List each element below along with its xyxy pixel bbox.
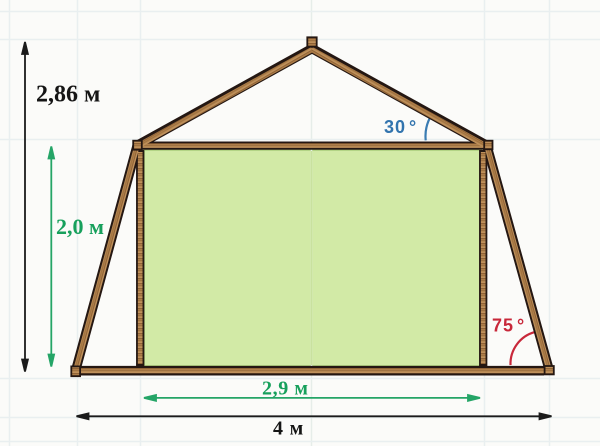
svg-text:75°: 75° <box>492 316 525 336</box>
svg-text:2,9 м: 2,9 м <box>262 378 309 400</box>
svg-text:30°: 30° <box>384 117 417 137</box>
svg-text:4 м: 4 м <box>273 418 304 440</box>
svg-text:2,0 м: 2,0 м <box>56 214 104 239</box>
svg-text:2,86 м: 2,86 м <box>36 82 100 108</box>
